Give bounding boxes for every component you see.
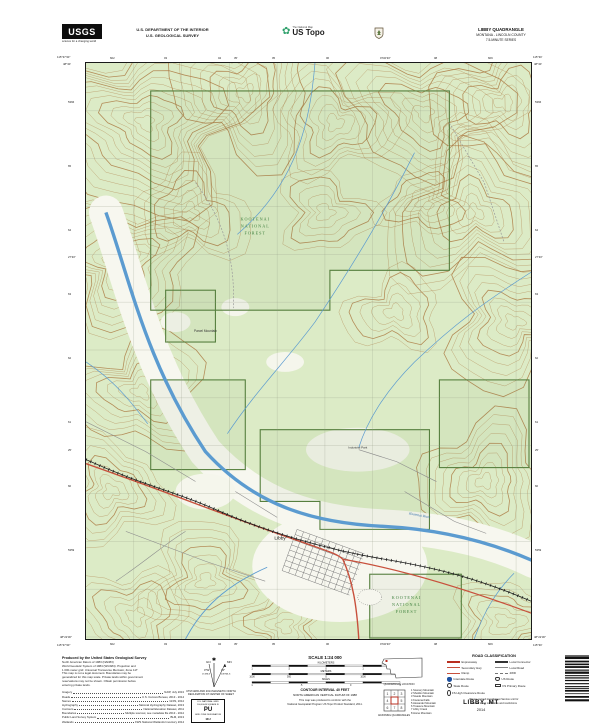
grid-tick-label: 05 xyxy=(272,56,275,60)
svg-text:8: 8 xyxy=(401,706,403,710)
grid-tick-label: 25' xyxy=(535,448,539,452)
sheet-year: 2014 xyxy=(443,708,519,712)
grid-tick-label: 602 xyxy=(110,642,115,646)
grid-tick-label: 65 xyxy=(535,164,538,168)
grid-tick-label: 05 xyxy=(272,642,275,646)
usgs-logo-text: USGS xyxy=(68,27,96,37)
usgs-topo-sheet: USGS science for a changing world U.S. D… xyxy=(0,0,600,725)
quad-location-dot xyxy=(386,660,388,662)
data-sources: ImageryNAIP, July 2013 RoadsU.S. Census … xyxy=(62,690,184,724)
barcode xyxy=(563,654,591,704)
grid-tick-label: 62 xyxy=(68,356,71,360)
grid-tick-label: 5366 xyxy=(68,100,74,104)
4wd-sample xyxy=(495,673,508,674)
department-heading: U.S. DEPARTMENT OF THE INTERIOR U.S. GEO… xyxy=(110,27,235,39)
svg-text:6: 6 xyxy=(387,706,389,710)
fs-primary-icon xyxy=(495,684,501,688)
grid-tick-label: 60 xyxy=(68,484,71,488)
quadrangle-heading: LIBBY QUADRANGLE MONTANA - LINCOLN COUNT… xyxy=(440,26,562,44)
ustopo-logo: ✿ The National Map US Topo xyxy=(282,26,325,37)
grid-tick-label: 5366 xyxy=(535,100,541,104)
quadrangle-title: LIBBY QUADRANGLE xyxy=(440,26,562,33)
state-locator-map xyxy=(381,657,423,682)
adjoining-quadrangles-grid: 12345678 xyxy=(383,689,407,713)
grid-tick-label: 27'30" xyxy=(535,255,543,259)
grid-tick-label: 08 xyxy=(434,642,437,646)
usng-square-id: PU xyxy=(193,707,223,713)
road-classification-legend: ROAD CLASSIFICATION Expressway Local Con… xyxy=(447,654,541,705)
local-road-sample xyxy=(495,667,508,668)
declination-diagram: ✱ GN MN 0°52' 15 MILS 14° 249 MILS xyxy=(192,655,238,691)
legend-title: ROAD CLASSIFICATION xyxy=(447,654,541,658)
grid-tick-label: 06 xyxy=(326,56,329,60)
gn-angle: 0°52' xyxy=(204,668,210,672)
svg-text:500: 500 xyxy=(287,676,292,679)
collar-top-left-lon: 115°37'30" xyxy=(57,55,70,59)
svg-text:4: 4 xyxy=(387,699,389,703)
nf-lower-label-2: NATIONAL xyxy=(392,602,421,607)
sheet-name: LIBBY, MT xyxy=(443,699,519,706)
grid-tick-label: 65 xyxy=(68,164,71,168)
grid-tick-label: 61 xyxy=(68,420,71,424)
nf-lower-label-1: KOOTENAI xyxy=(392,595,422,600)
svg-text:METERS: METERS xyxy=(321,669,332,673)
svg-text:2: 2 xyxy=(394,692,396,696)
sheet-name-block: LIBBY, MT 2014 xyxy=(443,699,519,712)
svg-text:1: 1 xyxy=(251,684,253,687)
grid-tick-label: 609 xyxy=(488,642,493,646)
cemetery-outline xyxy=(358,589,382,605)
grid-tick-label: 61 xyxy=(535,420,538,424)
local-connector-sample xyxy=(495,661,508,662)
usgs-tagline: science for a changing world xyxy=(62,40,106,43)
data-source-row: WetlandsFWS National Wetlands Inventory … xyxy=(62,720,184,724)
map-area: KOOTENAI NATIONAL FOREST KOOTENAI NATION… xyxy=(85,62,532,640)
grid-tick-label: 04 xyxy=(218,56,221,60)
grid-tick-label: 32'30" xyxy=(383,642,391,646)
industrial-park-label: Industrial Park xyxy=(348,446,367,450)
declination-caption: UTM GRID AND 2014 MAGNETIC NORTH DECLINA… xyxy=(178,690,244,697)
svg-text:3: 3 xyxy=(401,692,403,696)
grid-tick-label: 35' xyxy=(234,642,238,646)
svg-text:.5: .5 xyxy=(300,684,303,687)
usng-zone-label: GRID ZONE DESIGNATION xyxy=(193,714,223,716)
grid-tick-label: 27'30" xyxy=(68,255,76,259)
grid-tick-label: 04 xyxy=(218,642,221,646)
collar-top-right-lon: 115°30' xyxy=(533,55,542,59)
grid-tick-label: 609 xyxy=(488,56,493,60)
collar-bottom-left-lat: 48°22'30" xyxy=(60,635,72,639)
usng-subtitle: 100,000-M SQUARE ID xyxy=(193,704,223,706)
grid-tick-label: 64 xyxy=(68,228,71,232)
grid-tick-label: 5359 xyxy=(535,548,541,552)
mn-label: MN xyxy=(227,660,232,664)
collar-top-left-lat: 48°30' xyxy=(63,62,71,66)
usng-box: U.S. NATIONAL GRID 100,000-M SQUARE ID P… xyxy=(191,699,225,723)
svg-text:0: 0 xyxy=(350,684,352,687)
svg-text:1000: 1000 xyxy=(249,676,255,679)
expressway-sample xyxy=(447,661,460,663)
collar-bottom-right-lat: 48°22'30" xyxy=(534,635,546,639)
department-line2: U.S. GEOLOGICAL SURVEY xyxy=(110,33,235,39)
ustopo-flower-icon: ✿ xyxy=(282,27,290,37)
collar-bottom-left-lon: 115°37'30" xyxy=(57,643,70,647)
svg-text:5: 5 xyxy=(401,699,403,703)
grid-tick-label: 64 xyxy=(535,228,538,232)
grid-tick-label: 03 xyxy=(164,56,167,60)
grid-tick-label: 06 xyxy=(326,642,329,646)
grid-tick-label: 60 xyxy=(535,484,538,488)
collar-bottom-right-lon: 115°30' xyxy=(533,643,542,647)
ramp-sample xyxy=(447,673,460,674)
gn-label: GN xyxy=(206,660,211,664)
forest-service-shield-icon xyxy=(374,27,384,39)
grid-tick-label: 63 xyxy=(535,292,538,296)
interstate-shield-icon xyxy=(447,677,452,682)
us-route-shield-icon xyxy=(495,677,500,682)
grid-tick-label: 35' xyxy=(234,56,238,60)
svg-text:1: 1 xyxy=(362,667,364,670)
collar-top-right-lat: 48°30' xyxy=(534,62,542,66)
nf-upper-label-3: FOREST xyxy=(244,230,266,235)
adjoining-quad-name: 8 Horse Mountain xyxy=(411,712,457,715)
svg-text:.5: .5 xyxy=(288,667,291,670)
product-standard-note: This map was produced to conform with th… xyxy=(245,699,405,707)
svg-text:1: 1 xyxy=(251,667,253,670)
town-label: Libby xyxy=(274,535,286,541)
grid-tick-label: 62 xyxy=(535,356,538,360)
svg-text:1: 1 xyxy=(387,692,389,696)
map-canvas: KOOTENAI NATIONAL FOREST KOOTENAI NATION… xyxy=(86,63,531,639)
grid-tick-label: 63 xyxy=(68,292,71,296)
mn-angle: 14° xyxy=(221,668,225,672)
fine-print: North American Datum of 1983 (NAD83)Worl… xyxy=(62,661,184,687)
svg-text:MILES: MILES xyxy=(322,677,330,681)
secondary-hwy-sample xyxy=(447,667,460,668)
svg-text:✱: ✱ xyxy=(212,657,216,663)
grid-tick-label: 25' xyxy=(68,448,72,452)
production-notes: Produced by the United States Geological… xyxy=(62,656,184,724)
grid-tick-label: 03 xyxy=(164,642,167,646)
grid-tick-label: 602 xyxy=(110,56,115,60)
grid-tick-label: 08 xyxy=(434,56,437,60)
gn-mils: 15 MILS xyxy=(202,674,211,676)
nf-lower-label-3: FOREST xyxy=(396,609,418,614)
contour-interval-caption: CONTOUR INTERVAL 40 FEET NORTH AMERICAN … xyxy=(245,688,405,697)
svg-text:7: 7 xyxy=(394,706,396,710)
svg-text:1000: 1000 xyxy=(360,676,366,679)
nf-upper-label-1: KOOTENAI xyxy=(240,216,270,221)
usng-title: U.S. NATIONAL GRID xyxy=(193,701,223,703)
quadrangle-location-caption: QUADRANGLE LOCATION xyxy=(368,683,430,686)
usng-zone: 11U xyxy=(193,717,223,721)
fs-high-clearance-icon xyxy=(447,690,451,696)
grid-tick-label: 32'30" xyxy=(383,56,391,60)
grid-tick-label: 5359 xyxy=(68,548,74,552)
mn-mils: 249 MILS xyxy=(221,674,231,676)
ustopo-product: US Topo xyxy=(292,29,324,37)
svg-text:KILOMETERS: KILOMETERS xyxy=(318,661,335,665)
state-route-shield-icon xyxy=(447,683,452,688)
nf-upper-label-2: NATIONAL xyxy=(241,223,270,228)
quadrangle-series: 7.5-MINUTE SERIES xyxy=(440,38,562,43)
mountain-label: Parcel Mountain xyxy=(194,329,217,333)
usgs-logo: USGS xyxy=(62,24,102,39)
